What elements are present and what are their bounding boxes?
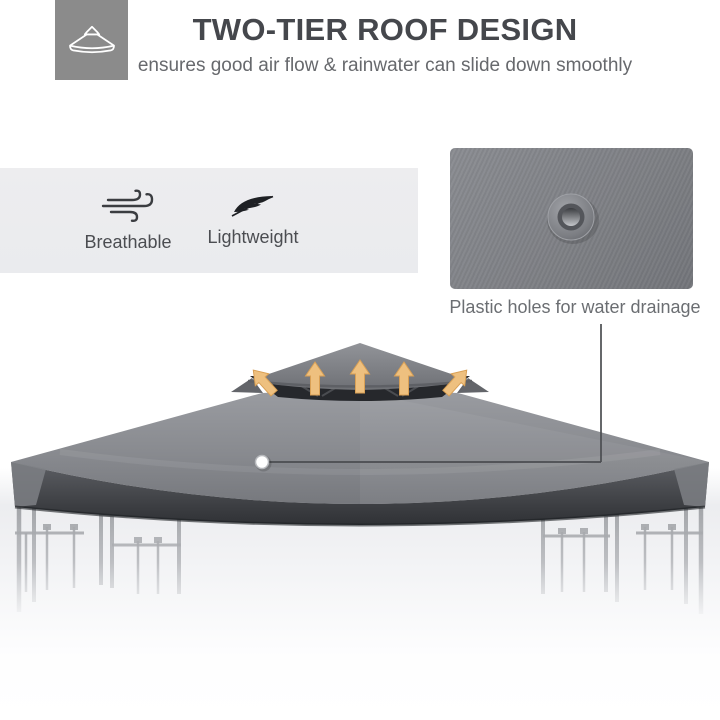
wind-icon bbox=[101, 189, 155, 223]
header-text: TWO-TIER ROOF DESIGN ensures good air fl… bbox=[130, 12, 640, 77]
features-panel: Breathable Lightweight bbox=[0, 168, 418, 273]
callout-dot bbox=[256, 456, 269, 469]
feature-label: Lightweight bbox=[207, 227, 298, 248]
gazebo-illustration bbox=[0, 0, 720, 720]
canopy-icon bbox=[62, 8, 122, 72]
page-subtitle: ensures good air flow & rainwater can sl… bbox=[130, 55, 640, 77]
feature-label: Breathable bbox=[84, 232, 171, 253]
feature-item-breathable: Breathable bbox=[68, 168, 188, 273]
header-icon-box bbox=[55, 0, 128, 80]
page-title: TWO-TIER ROOF DESIGN bbox=[130, 12, 640, 48]
grommet-icon bbox=[536, 184, 608, 252]
feather-icon bbox=[231, 194, 275, 218]
drainage-photo bbox=[450, 148, 693, 289]
drainage-caption: Plastic holes for water drainage bbox=[446, 297, 704, 318]
feature-item-lightweight: Lightweight bbox=[192, 168, 314, 273]
